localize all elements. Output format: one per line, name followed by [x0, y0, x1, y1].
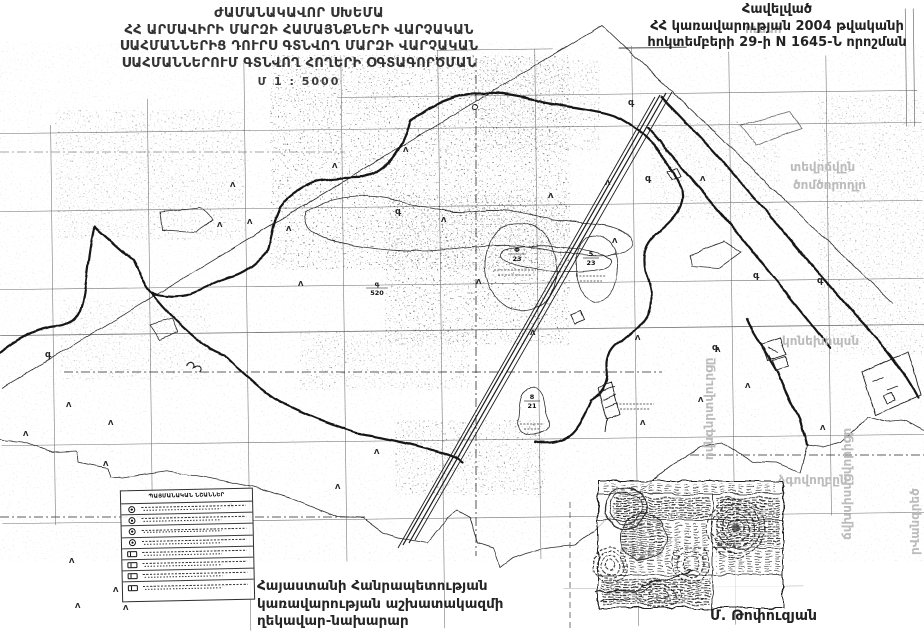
legend-entry-text-illegible	[143, 583, 251, 591]
vegetation-symbol: Λ	[123, 604, 129, 612]
legend-symbol-circle	[124, 517, 138, 524]
vegetation-symbol: Λ	[247, 218, 253, 226]
parcel-denominator: 520	[370, 289, 384, 297]
legend-row	[123, 580, 254, 594]
vegetation-symbol: Λ	[530, 329, 536, 337]
ghost-text: ծոմծորողլո	[793, 178, 866, 192]
vegetation-symbol: Λ	[745, 382, 751, 390]
legend-symbol-circle	[124, 506, 138, 513]
ghost-text: ովնգնրտվուրցը	[702, 357, 716, 460]
vegetation-symbol: Λ	[23, 430, 29, 438]
letter-symbol: գ	[45, 350, 52, 360]
stamp-number: N 478	[718, 543, 736, 549]
parcel-denominator: 23	[512, 255, 521, 263]
vegetation-symbol: Λ	[612, 237, 618, 245]
vegetation-symbol: Λ	[66, 401, 72, 409]
legend-entry-text-illegible	[142, 537, 250, 545]
vegetation-symbol: Λ	[548, 192, 554, 200]
signature-title-block: Հայաստանի Հանրապետության կառավարության ա…	[257, 578, 503, 631]
signature-line: կառավարության աշխատակազմի	[257, 596, 503, 614]
vegetation-symbol: Λ	[113, 586, 119, 594]
title-line: ՍԱՀՄԱՆՆԵՐԻՑ ԴՈՒՐՍ ԳՏՆՎՈՂ ՄԱՐԶԻ ՎԱՐՉԱԿԱՆ	[84, 39, 514, 56]
vegetation-symbol: Λ	[820, 424, 826, 432]
vegetation-symbol: Λ	[332, 162, 338, 170]
vegetation-symbol: Λ	[635, 334, 641, 342]
letter-symbol: գ	[817, 276, 824, 286]
parcel-denominator: 21	[527, 402, 537, 410]
legend-entry-text-illegible	[142, 526, 250, 534]
legend-symbol-box	[125, 551, 139, 557]
legend-entry-text-illegible	[142, 549, 250, 557]
ghost-text: տեվրճվըն	[790, 160, 855, 174]
scanned-map-page: Λ Λ Λ Λ Λ Λ Λ Λ Λ Λ Λ Λ Λ Λ Λ Λ Λ Λ Λ Λ …	[0, 0, 924, 636]
vegetation-symbol: Λ	[640, 419, 646, 427]
legend-symbol-box	[126, 573, 140, 579]
letter-symbol: գ	[753, 271, 760, 281]
title-line: ԺԱՄԱՆԱԿԱՎՈՐ ՍԽԵՄԱ	[84, 6, 514, 23]
vegetation-symbol: Λ	[69, 557, 75, 565]
ghost-text: կոնեխոպսն	[782, 334, 859, 348]
ghost-text: ճվխսիսվցվորիցր	[840, 428, 854, 540]
legend-entry-text-illegible	[141, 504, 249, 512]
stamp-cluster: N 478	[593, 481, 783, 608]
vegetation-symbol: Λ	[286, 225, 292, 233]
annex-line: ՀՀ կառավարության 2004 թվականի	[630, 19, 924, 36]
map-scale: Մ 1 : 5000	[84, 74, 514, 91]
letter-symbol: գ	[645, 174, 652, 184]
signature-line: Հայաստանի Հանրապետության	[257, 578, 503, 596]
legend-entry-text-illegible	[143, 571, 251, 579]
vegetation-symbol: Λ	[403, 146, 409, 154]
map-legend: ՊԱՅՄԱՆԱԿԱՆ ՆՇԱՆՆԵՐ	[120, 488, 255, 603]
vegetation-symbol: Λ	[476, 278, 482, 286]
legend-entry-text-illegible	[142, 560, 250, 568]
legend-symbol-circle	[125, 528, 139, 535]
legend-symbol-box	[126, 585, 140, 591]
legend-entry-text-illegible	[141, 515, 249, 523]
letter-symbol: գ	[628, 98, 635, 108]
annex-reference-block: Հավելված ՀՀ կառավարության 2004 թվականի հ…	[630, 2, 924, 52]
map-title-block: ԺԱՄԱՆԱԿԱՎՈՐ ՍԽԵՄԱ ՀՀ ԱՐՄԱՎԻՐԻ ՄԱՐԶԻ ՀԱՄԱ…	[84, 6, 514, 91]
parcel-numerator: գ	[375, 280, 380, 288]
vegetation-symbol: Λ	[75, 602, 81, 610]
vegetation-symbol: Λ	[700, 175, 706, 183]
legend-symbol-box	[125, 562, 139, 568]
vegetation-symbol: Λ	[441, 216, 447, 224]
signer-name: Մ. Թոփուզյան	[710, 608, 817, 624]
vegetation-symbol: Λ	[298, 280, 304, 288]
vegetation-symbol: Λ	[217, 221, 223, 229]
letter-symbol: գ	[712, 343, 719, 353]
letter-symbol: գ	[395, 207, 402, 217]
annex-line: հոկտեմբերի 29-ի N 1645-Ն որոշման	[630, 35, 924, 52]
parcel-numerator: 5	[589, 250, 594, 258]
legend-symbol-circle	[125, 539, 139, 546]
vegetation-symbol: Λ	[230, 181, 236, 189]
title-line: ՍԱՀՄԱՆՆԵՐՈՒՄ ԳՏՆՎՈՂ ՀՈՂԵՐԻ ՕԳՏԱԳՈՐԾՄԱՆ	[84, 56, 514, 73]
ghost-text: րՎանգրեծ	[908, 488, 922, 555]
annex-line: Հավելված	[630, 2, 924, 19]
title-line: ՀՀ ԱՐՄԱՎԻՐԻ ՄԱՐԶԻ ՀԱՄԱՅՆՔՆԵՐԻ ՎԱՐՉԱԿԱՆ	[84, 23, 514, 40]
vegetation-symbol: Λ	[103, 460, 109, 468]
parcel-denominator: 23	[586, 259, 595, 267]
signature-line: ղեկավար-նախարար	[257, 613, 503, 631]
vegetation-symbol: Λ	[605, 179, 611, 187]
parcel-numerator: Փ	[514, 246, 520, 254]
ghost-text: ձգովողբըն	[778, 473, 848, 487]
parcel-numerator: 8	[530, 393, 535, 401]
vegetation-symbol: Λ	[335, 483, 341, 491]
vegetation-symbol: Λ	[374, 448, 380, 456]
vegetation-symbol: Λ	[108, 419, 114, 427]
